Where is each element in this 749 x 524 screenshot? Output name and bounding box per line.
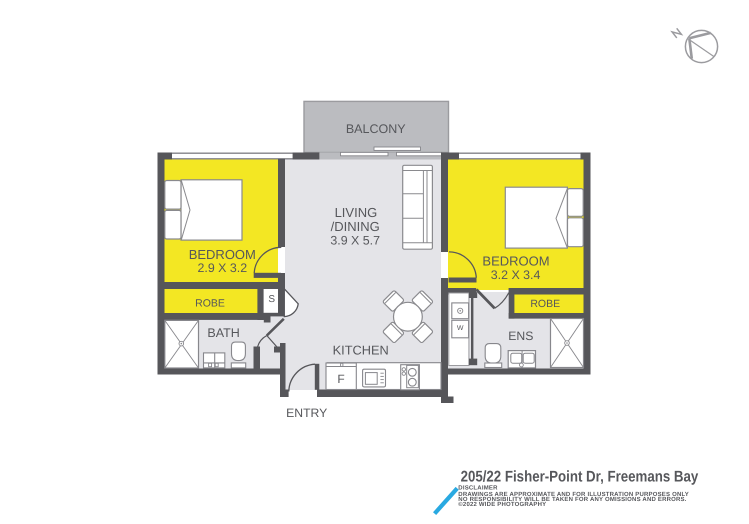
svg-text:205/22 Fisher-Point Dr, Freema: 205/22 Fisher-Point Dr, Freemans Bay	[461, 469, 699, 486]
svg-text:3.2 X 3.4: 3.2 X 3.4	[491, 268, 541, 282]
svg-text:ROBE: ROBE	[530, 298, 560, 310]
svg-text:F: F	[337, 372, 344, 386]
svg-text:S: S	[268, 294, 275, 305]
svg-text:KITCHEN: KITCHEN	[333, 343, 389, 358]
svg-text:BEDROOM: BEDROOM	[189, 247, 256, 262]
svg-text:BATH: BATH	[207, 326, 239, 340]
svg-text:ROBE: ROBE	[195, 297, 225, 309]
svg-text:/DINING: /DINING	[331, 219, 380, 234]
svg-text:3.9 X 5.7: 3.9 X 5.7	[330, 233, 380, 247]
svg-text:BEDROOM: BEDROOM	[482, 254, 549, 269]
svg-text:ENTRY: ENTRY	[286, 406, 327, 420]
svg-text:©2022 WIDE PHOTOGRAPHY: ©2022 WIDE PHOTOGRAPHY	[458, 501, 546, 508]
svg-text:DISCLAIMER: DISCLAIMER	[458, 485, 498, 492]
svg-text:LIVING: LIVING	[335, 205, 378, 220]
svg-text:2.9 X 3.2: 2.9 X 3.2	[197, 261, 247, 275]
svg-text:W: W	[457, 325, 464, 332]
svg-text:ENS: ENS	[508, 329, 533, 343]
svg-text:BALCONY: BALCONY	[346, 122, 406, 136]
